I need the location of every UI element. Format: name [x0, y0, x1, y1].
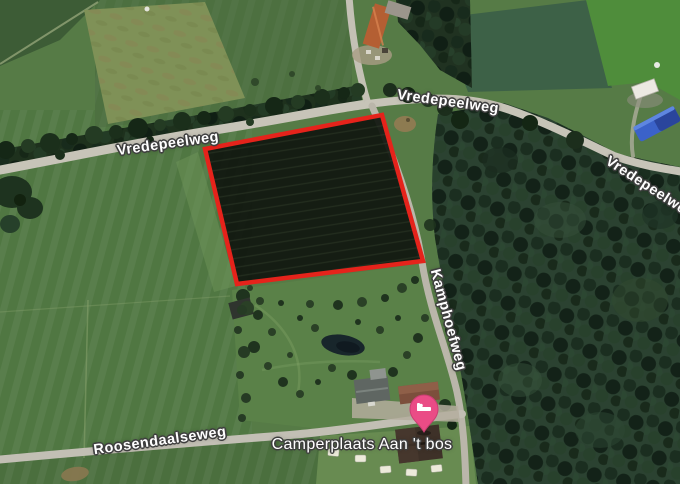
parked-car: [368, 402, 375, 407]
building-small-gray: [369, 368, 386, 380]
satellite-imagery: [0, 0, 680, 484]
dirt-patch: [394, 116, 416, 132]
map-viewport[interactable]: Vredepeelweg Vredepeelweg Vredepeelweg K…: [0, 0, 680, 484]
place-label-camperplaats[interactable]: Camperplaats Aan 't bos: [272, 436, 453, 454]
